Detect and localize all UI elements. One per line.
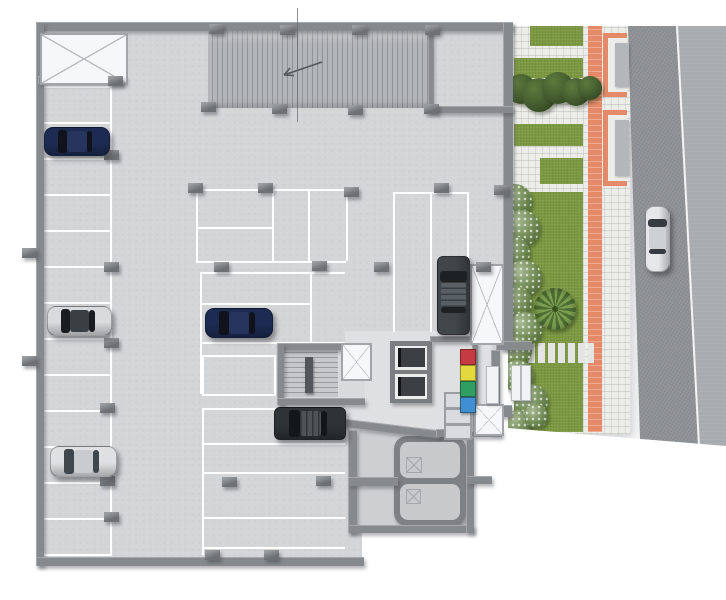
stall-line — [202, 472, 345, 474]
structural-column — [205, 550, 220, 560]
structural-column — [264, 550, 279, 560]
ramp-direction-arrow-icon — [268, 56, 328, 82]
wall — [277, 343, 345, 350]
structural-column — [425, 25, 440, 35]
recycling-bin-red — [460, 349, 476, 365]
stall-line — [393, 192, 395, 332]
wall — [348, 477, 398, 486]
door-panel — [486, 366, 499, 404]
car-roof — [70, 310, 89, 332]
car-roof — [441, 282, 466, 307]
shaft-void-x-box — [474, 404, 504, 436]
structural-column — [476, 262, 491, 272]
flowering-shrub — [524, 404, 548, 428]
wall — [430, 336, 474, 342]
stepping-stone-path — [528, 343, 594, 363]
car-roof — [649, 227, 666, 248]
floor-plan-canvas — [0, 0, 726, 600]
wall — [277, 398, 365, 405]
structural-column — [104, 262, 119, 272]
structural-column — [22, 248, 37, 258]
structural-column — [344, 187, 359, 197]
car-windshield — [219, 311, 229, 335]
section-reference-line — [297, 8, 298, 122]
structural-column — [374, 262, 389, 272]
structural-column — [280, 25, 295, 35]
stall-line — [202, 547, 345, 549]
car-black-suv — [274, 407, 346, 440]
stall-line — [308, 189, 310, 261]
landscape-strip — [508, 24, 726, 448]
grass-bed — [514, 124, 583, 146]
structural-column — [214, 262, 229, 272]
structural-column — [348, 105, 363, 115]
wall — [428, 106, 513, 113]
structural-column — [434, 183, 449, 193]
stall-line — [40, 158, 110, 160]
structural-column — [258, 183, 273, 193]
stall-line — [200, 303, 312, 305]
stall-line — [196, 189, 198, 261]
recycling-bin-green — [460, 381, 476, 397]
car-rear-glass — [321, 411, 327, 436]
structural-column — [188, 183, 203, 193]
car-rear-glass — [89, 310, 95, 332]
structural-column — [272, 104, 287, 114]
structural-column — [201, 102, 216, 112]
wall — [466, 437, 474, 533]
palm-plant — [534, 288, 576, 330]
shaft-void-x-box — [341, 343, 372, 381]
elevator-cab-2 — [398, 377, 425, 396]
storage-cell — [444, 424, 472, 440]
structural-column — [494, 185, 509, 195]
structural-column — [222, 477, 237, 487]
car-roof — [300, 411, 321, 436]
door-panel — [521, 365, 531, 401]
car-windshield — [61, 309, 70, 333]
stall-line — [346, 189, 348, 261]
stall-line — [467, 192, 469, 262]
stall-line — [200, 272, 345, 274]
stall-line — [40, 122, 110, 124]
wall — [466, 476, 492, 484]
car-navy-center — [205, 308, 273, 338]
wall — [36, 22, 44, 566]
car-windshield — [440, 271, 467, 282]
car-roof — [229, 312, 249, 334]
car-rear-glass — [441, 307, 466, 313]
stall-line — [202, 443, 345, 445]
stall-line — [202, 517, 345, 519]
car-navy-top-left — [44, 127, 110, 156]
shaft-void-x-box — [470, 264, 504, 345]
stair-handrail — [305, 357, 313, 393]
stall-line — [310, 272, 312, 342]
planter-pad — [615, 120, 629, 176]
door-panel — [511, 365, 521, 401]
stall-line — [40, 554, 110, 556]
structural-column — [209, 24, 224, 34]
shrub — [578, 76, 602, 100]
tank-hatch-icon — [406, 489, 421, 504]
car-white-bottom-left — [50, 446, 117, 477]
grass-bed — [530, 26, 583, 46]
stall-line — [40, 302, 110, 304]
car-roof — [74, 450, 94, 473]
structural-column — [312, 261, 327, 271]
car-rear-glass — [93, 450, 99, 473]
car-windshield — [64, 449, 74, 474]
stall-line — [40, 338, 110, 340]
structural-column — [108, 76, 123, 86]
planter-pad — [615, 43, 629, 87]
structural-column — [316, 476, 331, 486]
structural-column — [352, 25, 367, 35]
stall-line — [40, 230, 110, 232]
car-gray-suv — [437, 256, 470, 335]
grass-bed — [540, 158, 583, 184]
wall — [348, 525, 474, 533]
car-windshield — [289, 410, 300, 437]
car-rear-glass — [249, 312, 255, 334]
structural-column — [22, 356, 37, 366]
elevator-cab-1 — [398, 348, 425, 367]
car-windshield — [648, 219, 667, 228]
flowering-shrub — [510, 430, 532, 452]
car-white-road — [645, 206, 670, 272]
wall — [36, 557, 364, 566]
stall-outline — [202, 355, 276, 396]
car-rear-glass — [649, 249, 666, 254]
structural-column — [100, 403, 115, 413]
tank-hatch-icon — [406, 457, 422, 473]
car-rear-glass — [87, 131, 93, 152]
structural-column — [100, 476, 115, 486]
stall-line — [196, 227, 272, 229]
stall-line — [40, 194, 110, 196]
stall-line — [40, 518, 110, 520]
car-windshield — [58, 130, 68, 153]
stall-line — [430, 192, 432, 332]
recycling-bin-blue — [460, 397, 476, 413]
stall-line — [40, 374, 110, 376]
car-roof — [67, 131, 86, 152]
wall — [428, 28, 433, 110]
stall-line — [40, 266, 110, 268]
structural-column — [104, 338, 119, 348]
stall-line — [40, 86, 110, 88]
street-planter — [603, 33, 627, 97]
street-planter — [603, 110, 627, 186]
wall — [36, 22, 513, 31]
structural-column — [104, 512, 119, 522]
wall — [277, 343, 284, 405]
stall-line — [202, 408, 204, 555]
car-silver-left — [47, 306, 112, 336]
structural-column — [424, 104, 439, 114]
recycling-bin-yellow — [460, 365, 476, 381]
stall-line — [272, 189, 274, 261]
